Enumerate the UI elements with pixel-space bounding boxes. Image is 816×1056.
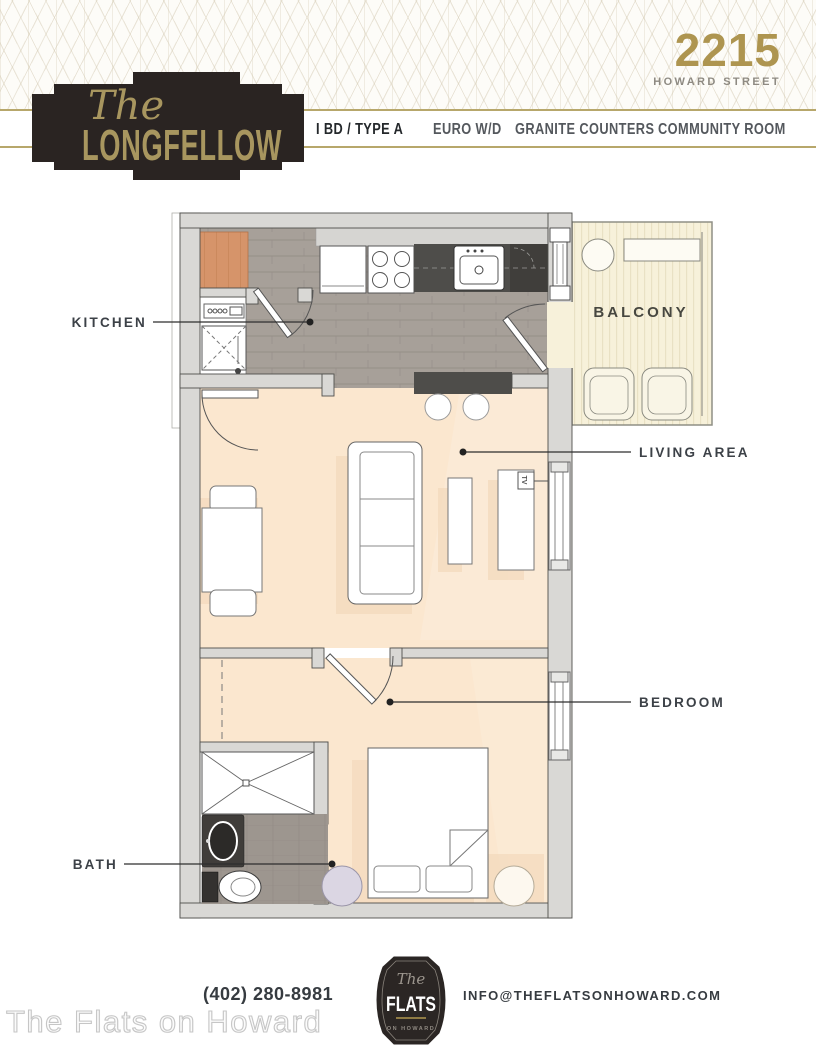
faucet-hole <box>474 250 477 253</box>
door-frame-tab <box>550 286 570 300</box>
balcony-door-frame <box>550 228 570 300</box>
flats-logo: The FLATS ON HOWARD <box>370 953 452 1048</box>
wall-stub <box>512 374 548 388</box>
balcony-table <box>582 239 614 271</box>
street-name: HOWARD STREET <box>653 76 781 88</box>
phone-number: (402) 280-8981 <box>203 984 333 1005</box>
balcony <box>572 222 712 425</box>
pillow <box>374 866 420 892</box>
coffee-table <box>448 478 472 564</box>
pillow <box>426 866 472 892</box>
balcony-bench <box>624 239 700 261</box>
dining-table <box>202 508 262 592</box>
wall-tab <box>322 374 334 396</box>
nightstand <box>494 866 534 906</box>
wall-left <box>180 213 200 918</box>
upper-cabinets <box>316 228 548 246</box>
kitchen-island <box>414 372 512 394</box>
nightstand <box>322 866 362 906</box>
leader-dot <box>307 319 314 326</box>
toilet-tank <box>202 872 218 902</box>
leader-dot <box>329 861 336 868</box>
watermark-text: The Flats on Howard <box>6 1004 322 1040</box>
label-living-area: LIVING AREA <box>639 445 750 460</box>
window-frame-tab <box>551 462 568 472</box>
balcony-door-opening <box>547 302 573 368</box>
leader-dot <box>460 449 467 456</box>
logo-name: FLATS <box>386 993 436 1016</box>
bedroom-window <box>549 672 570 760</box>
dining-chair <box>210 590 256 616</box>
closet-dot <box>235 368 241 374</box>
wall-bedroom <box>392 648 548 658</box>
entry-wood-floor <box>200 232 248 288</box>
label-balcony: BALCONY <box>593 304 688 321</box>
laundry-shelf <box>204 304 244 318</box>
tv-label: TV <box>520 476 527 485</box>
flyer-page: I BD / TYPE A EURO W/D GRANITE COUNTERS … <box>0 0 816 1056</box>
living-window <box>549 462 570 570</box>
wall-kitchen-living <box>180 374 332 388</box>
wall-tab <box>298 288 312 302</box>
closet-floor <box>200 658 328 746</box>
stool <box>463 394 489 420</box>
vanity-sink <box>209 822 237 860</box>
faucet-hole <box>481 250 484 253</box>
living-door-leaf <box>202 390 258 398</box>
window-frame-tab <box>551 560 568 570</box>
email-address: INFO@THEFLATSONHOWARD.COM <box>463 988 721 1003</box>
shower <box>202 752 314 814</box>
faucet-dot <box>206 839 210 843</box>
wall-bath-right-upper <box>314 742 328 824</box>
logo-subtext: ON HOWARD <box>387 1026 435 1032</box>
wall-top <box>180 213 570 228</box>
logo-the-script: The <box>397 970 426 988</box>
sofa-cushions <box>360 452 414 594</box>
logo-gold-rule <box>396 1017 426 1019</box>
label-bedroom: BEDROOM <box>639 695 725 710</box>
window-frame-tab <box>551 750 568 760</box>
label-kitchen: KITCHEN <box>72 315 147 330</box>
door-frame-tab <box>550 228 570 242</box>
bathroom <box>202 752 328 904</box>
label-bath: BATH <box>73 857 118 872</box>
wall-tab <box>390 648 402 666</box>
window-frame-tab <box>551 672 568 682</box>
sink-drain <box>475 266 483 274</box>
building-number: 2215 <box>653 26 781 74</box>
plaque-name-text: LONGFELLOW <box>82 124 282 168</box>
wall-closet-top <box>200 648 322 658</box>
faucet-hole <box>467 250 470 253</box>
stool <box>425 394 451 420</box>
shower-drain <box>243 780 249 786</box>
name-plaque: The LONGFELLOW <box>32 72 304 182</box>
wall-tab <box>312 648 324 668</box>
building-address: 2215 HOWARD STREET <box>653 26 781 88</box>
door-frame-column <box>553 242 567 286</box>
wall-closet-bottom <box>200 742 328 752</box>
leader-dot <box>387 699 394 706</box>
